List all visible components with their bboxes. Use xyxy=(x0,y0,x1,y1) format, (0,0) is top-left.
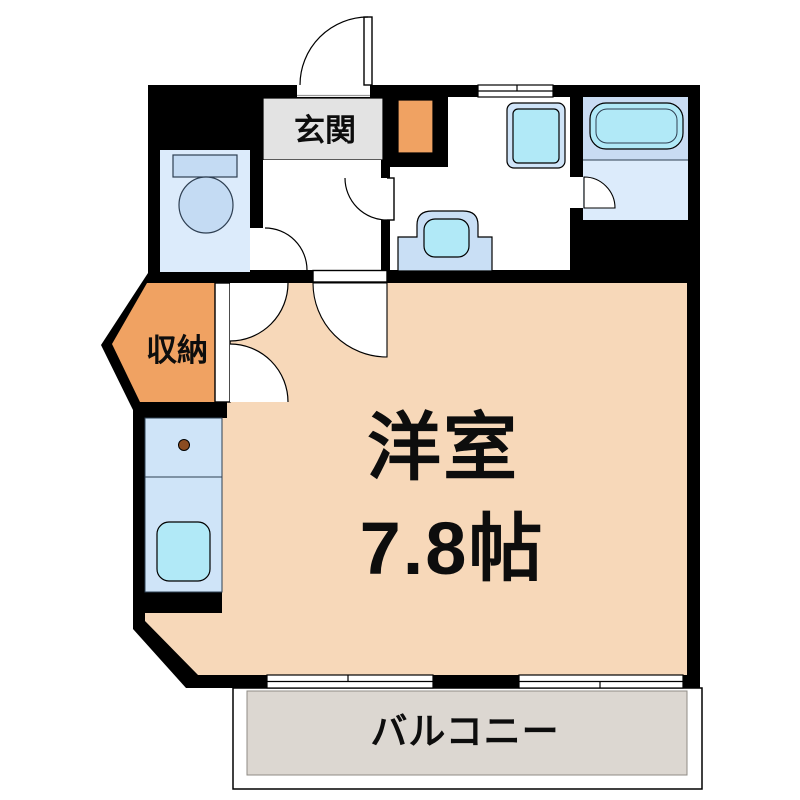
entrance-label: 玄関 xyxy=(294,113,356,148)
main-room-door-leaf xyxy=(313,271,387,283)
toilet-bowl xyxy=(179,177,233,233)
bathroom-doorway xyxy=(570,177,583,208)
main-room-label: 洋室 xyxy=(367,406,519,489)
floorplan-drawing: 玄関 収納 洋室 7.8帖 バルコニー xyxy=(0,0,800,800)
storage-door-panel xyxy=(215,283,230,402)
balcony-label: バルコニー xyxy=(370,711,559,752)
cabinet-sink-basin xyxy=(157,522,210,581)
balcony-window-left xyxy=(267,675,433,688)
kitchen-window xyxy=(478,85,553,97)
entrance-door-swing-arc xyxy=(300,17,368,85)
main-room-size-label: 7.8帖 xyxy=(360,507,545,590)
floorplan-page: 玄関 収納 洋室 7.8帖 バルコニー xyxy=(0,0,800,800)
storage-label: 収納 xyxy=(146,333,208,368)
entrance-door-leaf xyxy=(364,17,372,85)
cabinet-knob xyxy=(179,440,190,451)
kitchen-sink-basin xyxy=(513,109,559,163)
toilet-tank xyxy=(173,155,237,177)
toilet-doorway xyxy=(250,228,263,270)
wash-basin xyxy=(424,219,469,257)
balcony-window-right xyxy=(519,675,683,688)
shoe-cabinet xyxy=(398,100,433,153)
